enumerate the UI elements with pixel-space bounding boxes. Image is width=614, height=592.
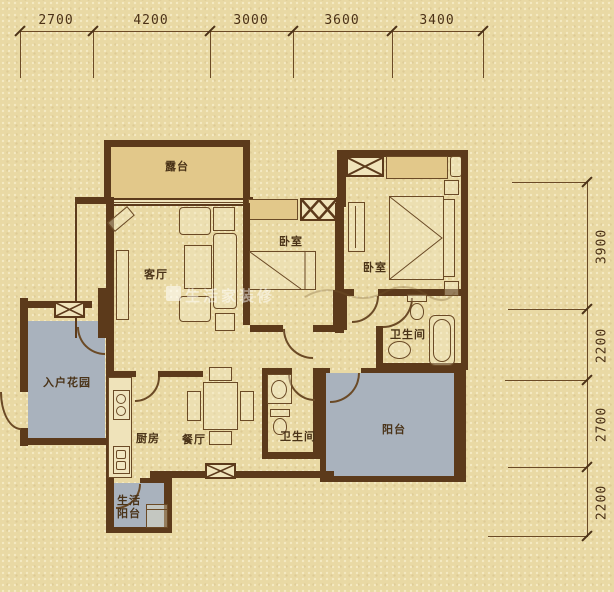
wall-segment [20, 301, 56, 308]
wall-segment [106, 478, 114, 533]
dim-value: 4200 [121, 13, 181, 28]
bay-window [386, 156, 448, 179]
room-label-utility-balcony-1: 生活 [114, 495, 144, 507]
wall-segment [361, 368, 462, 373]
watermark-signature [300, 283, 460, 303]
wall-segment [262, 452, 320, 459]
wall-segment [104, 140, 111, 204]
dining-table [203, 382, 238, 430]
room-label-entry-garden: 入户花园 [34, 377, 100, 389]
room-label-bathroom2: 卫生间 [272, 431, 324, 443]
chair [187, 391, 201, 421]
window-x-icon [300, 198, 338, 221]
washing-machine-line [147, 509, 167, 510]
room-label-terrace: 露台 [145, 161, 209, 173]
room-label-kitchen: 厨房 [128, 433, 168, 445]
dim-extension [20, 32, 21, 78]
toilet-bowl [410, 303, 424, 320]
dim-value: 3900 [595, 219, 610, 275]
wall-segment [150, 471, 205, 478]
dim-extension [293, 32, 294, 78]
wall-segment [243, 140, 250, 204]
window-x-icon [54, 301, 85, 318]
burner [116, 406, 126, 416]
terrace-floor [111, 147, 243, 199]
side-table [215, 313, 235, 331]
sink [388, 341, 411, 359]
dim-value: 2700 [595, 397, 610, 453]
wall-segment [20, 298, 28, 392]
dim-extension [483, 32, 484, 78]
wall-segment [313, 325, 335, 332]
armchair [179, 207, 211, 235]
coffee-table [184, 245, 212, 289]
wall-segment [158, 371, 203, 377]
dim-value: 3000 [221, 13, 281, 28]
room-label-utility-balcony-2: 阳台 [114, 508, 144, 520]
window-band [111, 198, 243, 206]
nightstand [444, 180, 459, 195]
wall-segment [320, 476, 466, 482]
dim-extension [93, 32, 94, 78]
floor-plan: 2700 4200 3000 3600 3400 3900 2200 2700 … [0, 0, 614, 592]
dim-value: 3400 [407, 13, 467, 28]
wall-segment [140, 478, 166, 483]
sink [271, 380, 287, 399]
tv-cabinet [116, 250, 129, 320]
sink-basin [116, 450, 126, 459]
dim-line [587, 182, 588, 537]
door-arc [283, 329, 313, 359]
watermark-logo-icon [166, 286, 181, 301]
dim-value: 2700 [26, 13, 86, 28]
dim-extension [392, 32, 393, 78]
dim-extension [488, 536, 587, 537]
dim-extension [210, 32, 211, 78]
sink-basin [116, 461, 126, 470]
headboard [443, 199, 455, 277]
dim-value: 3600 [312, 13, 372, 28]
wall-segment [320, 368, 330, 373]
chair [240, 391, 254, 421]
dim-extension [512, 182, 587, 183]
entry-door-arc [0, 392, 21, 430]
toilet-tank [270, 409, 290, 417]
wall-segment [250, 325, 283, 332]
wall-segment [75, 197, 108, 204]
side-table [213, 207, 235, 231]
washing-machine [146, 504, 168, 528]
dim-extension [508, 309, 587, 310]
door-arc [135, 377, 160, 402]
wardrobe-line [355, 206, 356, 248]
watermark-text: 生活家装修 [185, 285, 305, 306]
dim-value: 2200 [595, 318, 610, 374]
wall-segment [454, 368, 466, 482]
dim-extension [508, 467, 587, 468]
room-label-living: 客厅 [132, 269, 180, 281]
wall-segment [20, 438, 114, 445]
burner [116, 394, 126, 404]
wall-segment [337, 150, 346, 207]
room-label-balcony: 阳台 [370, 424, 418, 436]
room-label-bathroom1: 卫生间 [380, 329, 436, 341]
window-x-icon [205, 463, 236, 479]
wardrobe [348, 202, 365, 252]
door-arc [288, 374, 315, 401]
window-x-icon [346, 156, 384, 177]
chair [209, 367, 232, 381]
room-label-bedroom1: 卧室 [268, 236, 314, 248]
dim-extension [505, 380, 587, 381]
wall-segment [84, 301, 92, 308]
bay-window [248, 199, 298, 220]
room-label-bedroom2: 卧室 [352, 262, 398, 274]
dim-value: 2200 [595, 475, 610, 531]
wall-segment [461, 156, 468, 367]
room-label-dining: 餐厅 [174, 434, 214, 446]
wall-segment [320, 368, 326, 482]
wall-segment [104, 140, 250, 147]
